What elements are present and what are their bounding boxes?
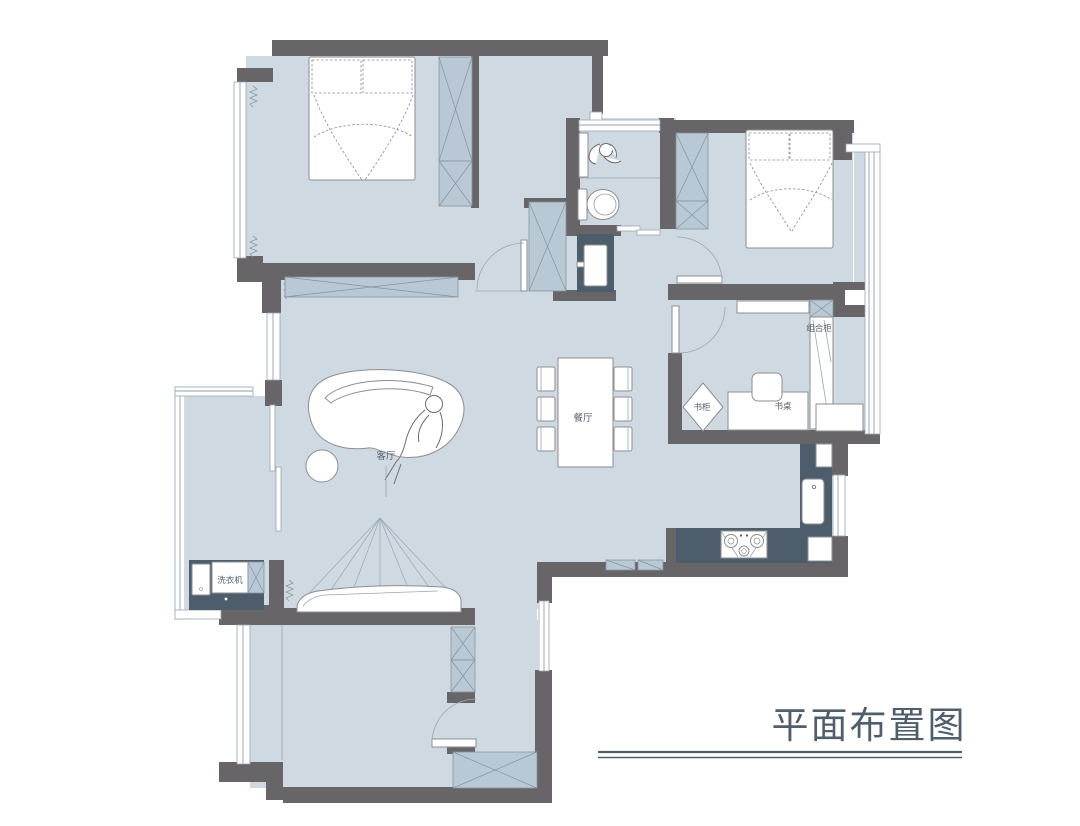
toilet: [578, 189, 619, 220]
balcony-sliding-door: [270, 405, 275, 471]
closet-cabinet: [453, 752, 537, 788]
counter-appliance: [816, 444, 832, 467]
dining-room-label: 餐厅: [573, 412, 593, 424]
vanity-basin: [584, 245, 607, 286]
entry-low-cabinets: [606, 560, 663, 570]
living-room-label: 客厅: [376, 450, 396, 462]
floor-plan-canvas: 餐厅 客厅 书柜 书桌 组合柜 洗衣机 平面布置图: [0, 0, 1080, 826]
wardrobe: [676, 133, 708, 229]
bed-double: [309, 57, 415, 180]
window-bench: [816, 404, 863, 431]
ottoman: [306, 450, 338, 482]
title-block: 平面布置图: [598, 705, 967, 758]
bathroom-sliding-door: [617, 226, 640, 231]
desk-chair: [752, 373, 782, 401]
counter-appliance: [808, 537, 832, 561]
page-title: 平面布置图: [772, 705, 967, 746]
wall-shelf: [737, 301, 809, 313]
tv-wall-cabinet: [285, 277, 458, 297]
combo-cabinet-label: 组合柜: [806, 323, 832, 333]
bookcase-label: 书柜: [693, 402, 711, 412]
wardrobe: [439, 57, 472, 206]
laundry-cabinet: [248, 562, 264, 593]
washing-machine-label: 洗衣机: [217, 575, 243, 585]
stove: [721, 531, 767, 558]
hallway-cabinet: [529, 202, 566, 291]
wash-counter: [579, 133, 588, 177]
faucet: [577, 262, 584, 267]
vanity: [577, 234, 614, 292]
floor-plan-drawing: 餐厅 客厅 书柜 书桌 组合柜 洗衣机 平面布置图: [0, 0, 1080, 826]
entry-niche: [845, 290, 867, 305]
wardrobe: [451, 627, 475, 692]
laundry-balcony: [189, 560, 264, 610]
desk-label: 书桌: [774, 401, 792, 411]
